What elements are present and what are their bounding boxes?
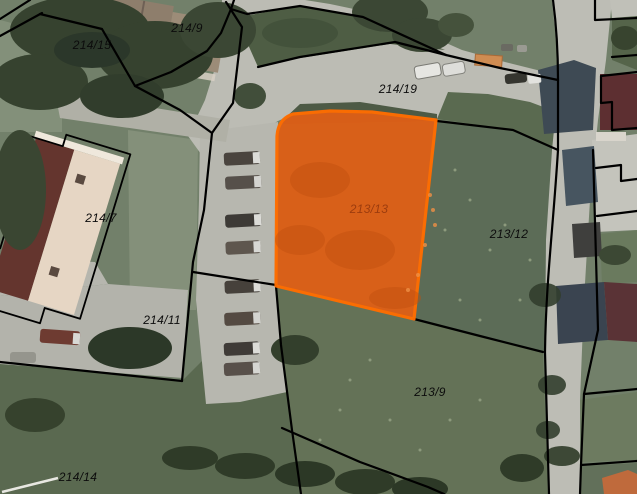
building-roof (538, 60, 596, 134)
building-roof (556, 282, 608, 344)
map-canvas[interactable]: 214/15 214/9 214/19 214/7 213/13 213/12 … (0, 0, 637, 494)
building-roof (604, 282, 637, 342)
building-roof (572, 222, 602, 258)
aerial-imagery-layer (0, 0, 637, 494)
highlighted-parcel-213-13[interactable] (275, 111, 437, 319)
